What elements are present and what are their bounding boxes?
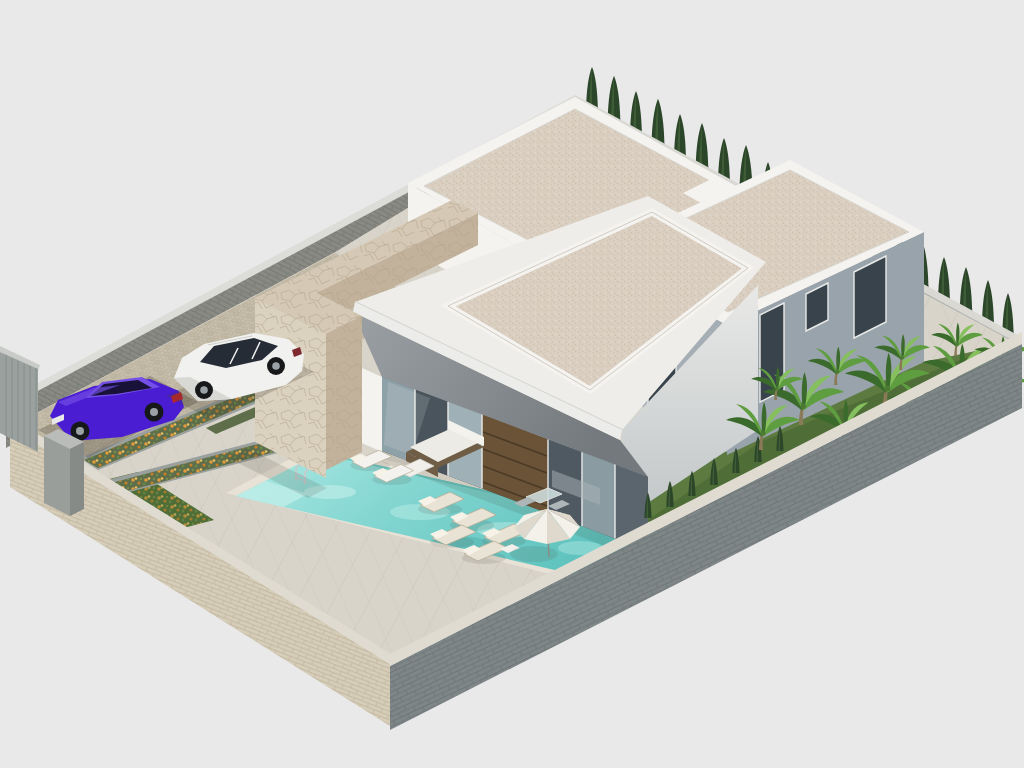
gate-pillar xyxy=(44,429,84,516)
facade-pillar xyxy=(362,368,382,452)
render-canvas xyxy=(0,0,1024,768)
